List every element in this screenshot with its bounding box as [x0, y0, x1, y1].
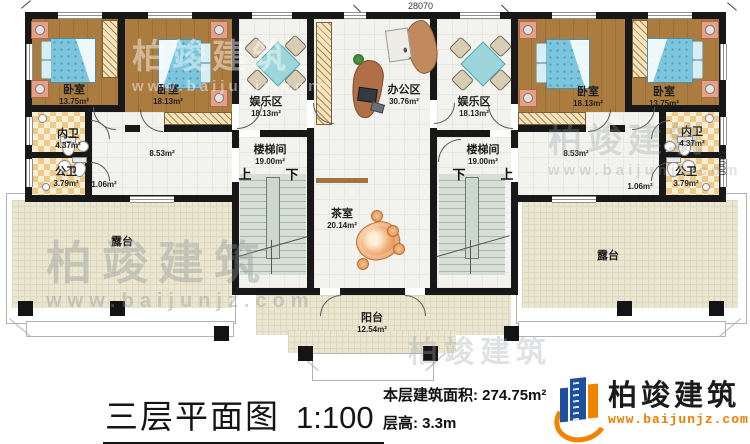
nightstand-icon: [701, 21, 719, 39]
pillow-icon: [200, 43, 211, 63]
writing-board-icon: [385, 28, 412, 63]
column: [298, 346, 313, 361]
label-hall-right-area: 8.53m²: [563, 149, 588, 158]
wall: [610, 125, 625, 132]
stool-icon: [393, 243, 405, 255]
stool-icon: [357, 258, 369, 270]
logo-tower-icon: [560, 388, 568, 423]
sink-icon: [664, 141, 676, 152]
floor-height-label: 层高:: [383, 415, 418, 432]
nightstand-icon: [31, 21, 49, 39]
wall: [517, 195, 726, 202]
label-stair-left: 楼梯间 19.00m²: [254, 144, 287, 166]
wall: [260, 130, 314, 137]
label-office: 办公区 30.76m²: [388, 84, 421, 106]
stair-guide-line: [470, 240, 471, 274]
window: [552, 196, 596, 203]
window: [720, 44, 727, 80]
column: [18, 301, 33, 316]
dimension-right: 14000: [717, 143, 727, 183]
wall: [511, 125, 586, 132]
label-up: 上: [500, 164, 513, 183]
plant-icon: [353, 54, 364, 65]
bed-icon: [546, 39, 590, 89]
bed-icon: [50, 38, 96, 83]
room-terrace-right: [522, 200, 738, 308]
balcony-skirt: [312, 353, 434, 381]
label-bedroom-left: 卧室 18.13m²: [153, 84, 183, 106]
label-tea-room: 茶室 20.14m²: [327, 208, 357, 230]
company-logo: 柏竣建筑 www.baijunjz.com: [552, 370, 750, 442]
floor-area-label: 本层建筑面积:: [383, 387, 478, 404]
monitor-icon: [357, 87, 378, 104]
label-down: 下: [452, 164, 465, 183]
label-up: 上: [238, 164, 251, 183]
column: [110, 301, 125, 316]
column: [214, 326, 229, 341]
wall: [164, 125, 232, 132]
wall: [25, 12, 726, 19]
label-bath-private-left: 内卫 4.37m²: [55, 128, 80, 150]
pillow-icon: [41, 41, 52, 60]
terrace-right-skirt: [518, 321, 726, 337]
label-stair-right: 楼梯间 19.00m²: [467, 144, 500, 166]
shower-icon: [38, 114, 47, 123]
window: [26, 44, 33, 80]
label-bath-public-left: 公卫 3.79m²: [53, 166, 78, 188]
nightstand-icon: [519, 21, 537, 39]
label-entertainment-left: 娱乐区 18.13m²: [250, 96, 283, 118]
wall: [118, 12, 125, 112]
nightstand-icon: [31, 80, 49, 98]
floor-height-value: 3.3m: [422, 415, 456, 432]
pillow-icon: [200, 63, 211, 83]
wall: [307, 12, 314, 100]
window: [720, 117, 727, 145]
nightstand-icon: [701, 80, 719, 98]
dimension-top: 28070: [408, 1, 433, 11]
pillow-icon: [536, 43, 547, 63]
pillow-icon: [692, 60, 703, 79]
window: [552, 12, 596, 19]
drain-icon: [42, 183, 50, 191]
column: [504, 326, 519, 341]
wardrobe-icon: [632, 20, 648, 78]
wardrobe-icon: [102, 20, 118, 78]
bed-icon: [647, 38, 693, 83]
logo-tower-icon: [588, 383, 598, 418]
wall: [125, 125, 140, 132]
window: [58, 12, 102, 19]
label-terrace-left: 露台: [111, 236, 133, 249]
logo-company-name: 柏竣建筑: [608, 372, 740, 414]
logo-building-icon: [552, 372, 604, 438]
title-text: 三层平面图: [105, 398, 280, 435]
bed-icon: [158, 39, 202, 89]
drain-icon: [702, 183, 710, 191]
shelf-icon: [316, 178, 368, 183]
room-terrace-left: [12, 200, 232, 308]
label-entertainment-right: 娱乐区 18.13m²: [458, 96, 491, 118]
label-bath-private-right: 内卫 4.37m²: [679, 126, 704, 148]
window: [26, 159, 33, 187]
label-down: 下: [285, 164, 298, 183]
wall: [307, 137, 314, 295]
wardrobe-icon: [518, 112, 586, 125]
stair-guide-line: [271, 240, 272, 274]
wall: [340, 288, 405, 295]
floor-area-value: 274.75m²: [482, 387, 546, 404]
label-terrace-right: 露台: [597, 250, 619, 263]
stool-icon: [371, 210, 383, 222]
label-bedroom-right: 卧室 18.13m²: [573, 86, 603, 108]
logo-website: www.baijunjz.com: [608, 412, 749, 427]
pillow-icon: [41, 60, 52, 79]
nightstand-icon: [519, 89, 537, 107]
wardrobe-icon: [164, 112, 232, 125]
window: [648, 12, 692, 19]
label-bath-public-right: 公卫 3.79m²: [673, 166, 698, 188]
nightstand-icon: [210, 89, 228, 107]
floor-plan-page: 28070 14000 卧室 13.75m² 卧室 18.13m² 内卫 4.3…: [0, 0, 750, 444]
window: [344, 12, 366, 19]
window: [148, 12, 192, 19]
window: [460, 12, 500, 19]
label-balcony: 阳台 12.54m²: [357, 312, 387, 334]
shower-icon: [705, 114, 714, 123]
column: [423, 346, 438, 361]
logo-tower-icon: [570, 377, 586, 421]
window: [26, 117, 33, 145]
label-bedroom-far-left: 卧室 13.75m²: [59, 84, 89, 106]
pillow-icon: [536, 63, 547, 83]
label-hall-left-area: 8.53m²: [149, 149, 174, 158]
label-bedroom-far-right: 卧室 13.75m²: [649, 86, 679, 108]
window: [130, 196, 174, 203]
nightstand-icon: [210, 21, 228, 39]
label-nook-left-area: 1.06m²: [91, 180, 116, 189]
wall: [625, 12, 632, 112]
title-scale: 1:100: [296, 400, 374, 435]
wall: [425, 288, 518, 295]
terrace-left-skirt: [26, 321, 234, 337]
window: [252, 12, 292, 19]
wall: [435, 130, 490, 137]
drawing-info: 本层建筑面积: 274.75m² 层高: 3.3m: [383, 384, 546, 440]
stool-icon: [387, 225, 399, 237]
label-nook-right-area: 1.06m²: [627, 182, 652, 191]
corner-mark: [21, 0, 31, 8]
wall: [232, 288, 320, 295]
wall: [430, 137, 437, 295]
column: [709, 301, 724, 316]
column: [617, 301, 632, 316]
corner-mark: [727, 2, 737, 10]
pillow-icon: [692, 41, 703, 60]
drawing-title: 三层平面图1:100: [103, 390, 384, 444]
